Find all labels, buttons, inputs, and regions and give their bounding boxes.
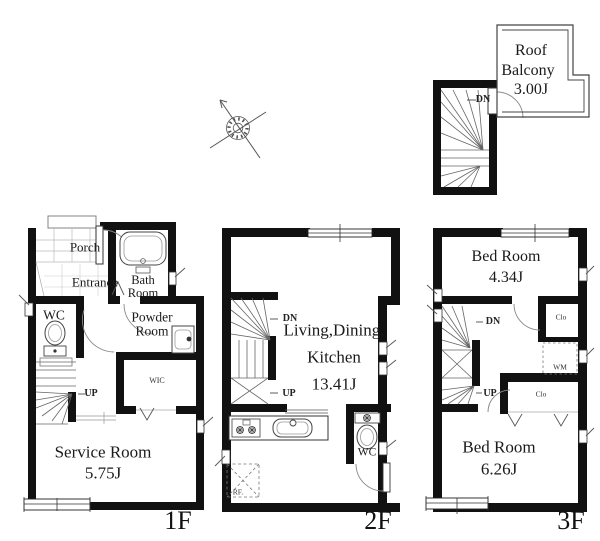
- wic-label: WIC: [149, 377, 165, 385]
- roof-balcony-area: 3.00J: [514, 82, 548, 98]
- ldk-label-line1: Living,Dining,: [283, 322, 384, 339]
- bath-room-label-line1: Bath: [131, 274, 155, 287]
- floor-label-2f: 2F: [364, 508, 391, 534]
- floor-label-3f: 3F: [557, 508, 584, 534]
- bedroom2-area: 6.26J: [481, 461, 517, 478]
- closet1-label: Clo: [556, 313, 567, 321]
- porch-label: Porch: [70, 241, 100, 254]
- powder-sink-icon: [172, 326, 194, 353]
- bedroom1-area: 4.34J: [489, 270, 523, 286]
- roof-dn-label: DN: [476, 95, 490, 105]
- bath-room-label-line2: Room: [128, 287, 159, 300]
- floor1-stairs: [36, 362, 85, 424]
- refrigerator-label: RF.: [233, 488, 243, 496]
- bathtub-icon: [120, 232, 166, 273]
- north-compass-icon: [210, 100, 266, 158]
- wc-label-1f: WC: [43, 308, 65, 322]
- floor-label-1f: 1F: [164, 508, 191, 534]
- wc-label-2f: WC: [358, 447, 377, 459]
- service-room-area: 5.75J: [85, 465, 121, 482]
- service-room-label: Service Room: [55, 444, 152, 461]
- entrance-label: Entrance: [72, 276, 118, 289]
- roof-balcony-label-line2: Balcony: [501, 63, 554, 79]
- ldk-area: 13.41J: [312, 376, 357, 393]
- closet-hanger-icons: [508, 412, 578, 426]
- up-label-2f: UP: [282, 389, 295, 399]
- dn-label-3f: DN: [486, 317, 500, 327]
- up-label-3f: UP: [483, 389, 496, 399]
- bedroom1-label: Bed Room: [472, 249, 541, 265]
- toilet-icon-1f: [40, 321, 72, 366]
- closet2-label: Clo: [536, 390, 547, 398]
- floorplan-page: Roof Balcony 3.00J DN Porch Entrance Bat…: [0, 0, 600, 541]
- sink-icon: [273, 419, 312, 437]
- floor2-walls: [222, 228, 400, 512]
- bedroom2-label: Bed Room: [462, 439, 535, 456]
- wic-hanger-icon: [136, 408, 176, 420]
- up-label-1f: UP: [84, 389, 97, 399]
- wc-door-2f: [356, 463, 390, 492]
- floor1-hall-step: [76, 412, 116, 424]
- ldk-label-line2: Kitchen: [307, 349, 361, 366]
- washing-machine-label: WM: [553, 363, 567, 371]
- powder-room-label-line2: Room: [135, 324, 168, 338]
- powder-room-label-line1: Powder: [131, 310, 172, 324]
- toilet-icon-2f: [355, 413, 380, 449]
- roof-balcony-label-line1: Roof: [515, 43, 547, 59]
